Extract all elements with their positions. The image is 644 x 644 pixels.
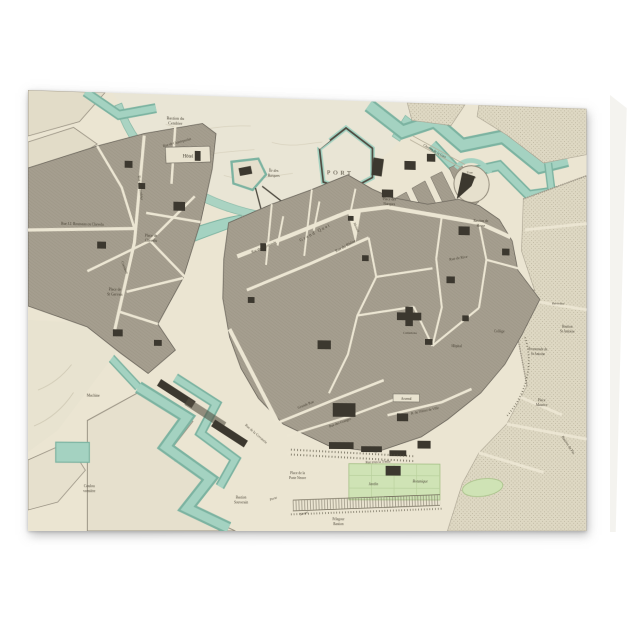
map-label-belvedere: Belvédère [552,302,565,306]
map-label-place-maurice-2: Maurice [536,403,548,407]
greeting-card: PORT Bastion du Cendrier Hôtel Rue du Ce… [28,90,586,531]
map-label-arsenal: Arsenal [401,397,411,401]
map-label-hopital: Hôpital [451,344,462,348]
map-label-cathedrale: Cathédrale [403,331,417,335]
map-label-bastion-souverain: Bastion [236,496,247,500]
map-label-coulouvreniere-2: vrenière [83,489,96,493]
map-label-bastion-cendrier-2: Cendrier [168,120,183,125]
map-label-place-maurice: Place [538,398,546,402]
map-label-college: Collège [494,329,505,333]
map-label-porte-neuve-place-2: Porte Neuve [289,476,306,480]
map-label-ile-barques-2: Barques [268,174,280,178]
map-label-ile-barques: Île des [268,168,279,173]
map-label-bastion-hesse-2: Hesse [477,224,486,228]
garden-building [386,466,401,476]
map-label-bastion-st-antoine-2: St Antoine [560,329,575,333]
map-label-promenade: Promenade de [529,347,548,351]
hotel-de-ville-block [397,413,408,421]
st-germain-block [333,403,356,417]
map-label-treille: Rue sous la Treille [365,460,391,465]
map-label-st-gervais: Place de [109,287,122,291]
map-label-bastion-souverain-2: Souverain [234,500,248,504]
map-label-tour-maitresse: Tour [467,170,474,174]
map-label-place-barques: Place des [383,197,397,201]
map-label-chevelu: Place de [145,234,158,238]
map-label-bastion-st-antoine: Bastion [562,325,573,329]
card-back-edge [610,95,629,532]
vintage-map: PORT Bastion du Cendrier Hôtel Rue du Ce… [28,90,586,531]
map-label-pelegour: Pélegour [332,517,345,521]
basin-pond [56,442,90,462]
map-label-machine: Machine [87,394,100,398]
map-label-tour-maitresse-2: Maîtresse [463,175,476,179]
map-label-promenade-2: St Antoine [531,352,545,356]
map-label-jardin: Jardin [369,481,379,486]
map-label-pelegour-2: Bastion [333,522,344,526]
map-label-place-barques-2: Barques [384,202,396,206]
map-label-chevelu-2: Chevelu [145,239,157,243]
map-label-port: PORT [327,169,354,177]
map-label-porte-neuve-place: Place de la [290,471,305,475]
map-label-st-gervais-2: St Gervais [107,292,123,296]
map-label-bastion-hesse: Bastion de [473,219,488,223]
map-label-hotel: Hôtel [183,154,194,159]
map-label-botanique: Botanique [413,479,429,484]
product-mockup-stage: PORT Bastion du Cendrier Hôtel Rue du Ce… [0,0,644,644]
map-label-coulouvreniere: Coulou [84,484,95,488]
